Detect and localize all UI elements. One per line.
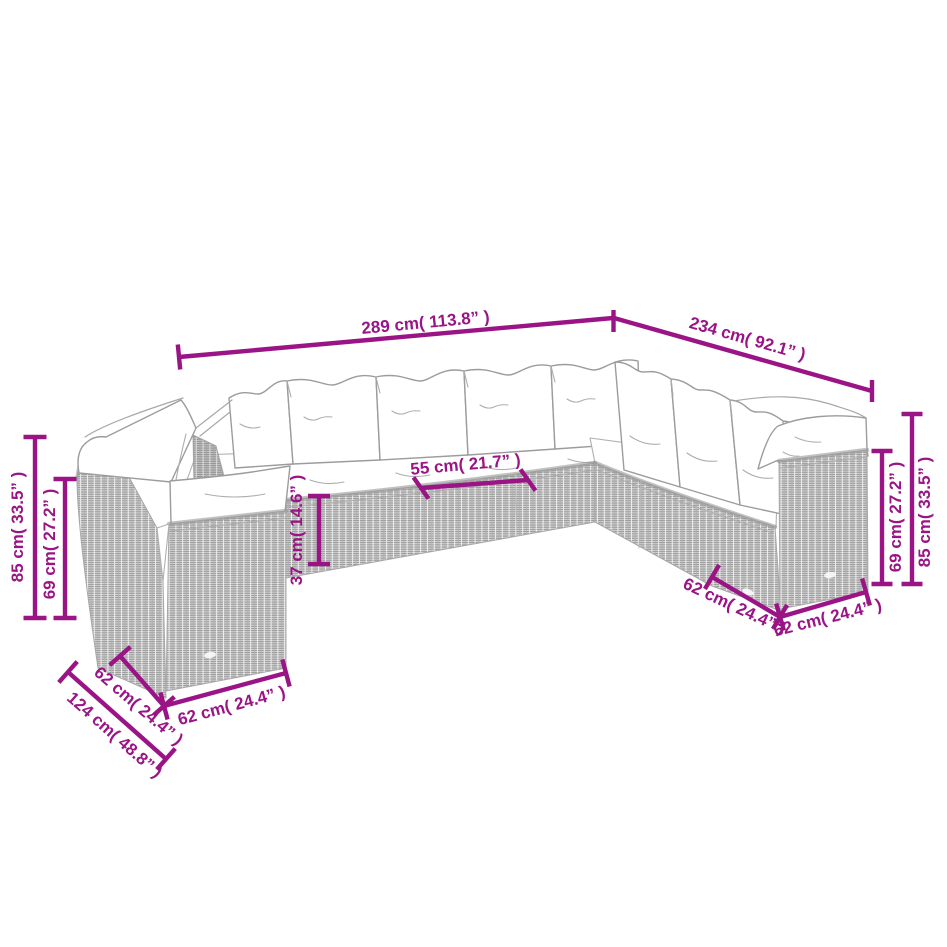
- svg-text:85 cm( 33.5” ): 85 cm( 33.5” ): [8, 472, 27, 583]
- svg-text:124 cm( 48.8” ): 124 cm( 48.8” ): [63, 688, 166, 781]
- svg-text:69 cm( 27.2” ): 69 cm( 27.2” ): [886, 462, 905, 573]
- svg-text:69 cm( 27.2” ): 69 cm( 27.2” ): [40, 489, 59, 600]
- svg-text:37 cm( 14.6” ): 37 cm( 14.6” ): [287, 475, 306, 586]
- svg-text:85 cm( 33.5” ): 85 cm( 33.5” ): [915, 457, 934, 568]
